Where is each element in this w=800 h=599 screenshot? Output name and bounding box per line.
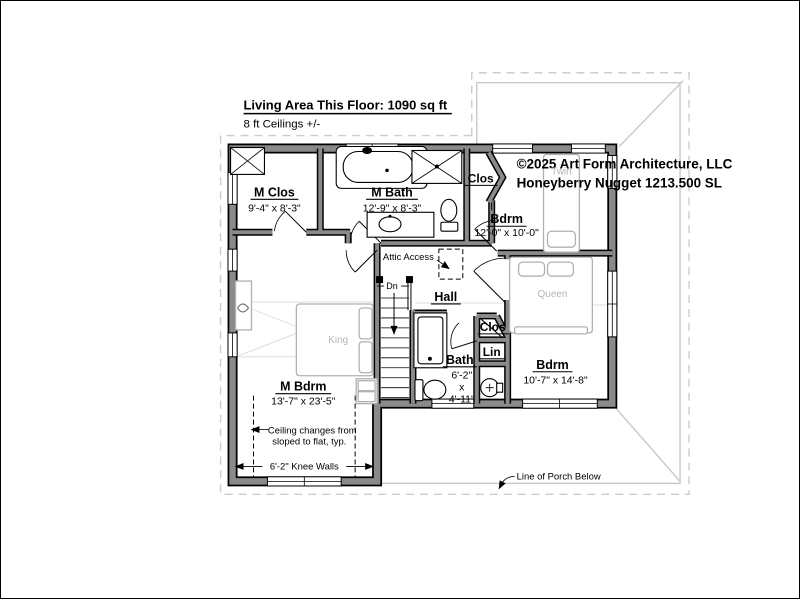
door-m-bdrm bbox=[346, 250, 377, 272]
toilet-mbath bbox=[441, 199, 458, 231]
closet-shelf bbox=[231, 148, 265, 175]
floor-plan-page: Living Area This Floor: 1090 sq ft 8 ft … bbox=[0, 0, 800, 599]
toilet-hall-bath bbox=[415, 380, 446, 401]
room-label-bath: Bath bbox=[446, 353, 474, 367]
door-queen-bdrm bbox=[474, 258, 505, 302]
door-hall-bath bbox=[451, 323, 477, 349]
room-label-m-bath: M Bath bbox=[371, 185, 412, 199]
room-dims-m-bath: 12'-9" x 8'-3" bbox=[363, 203, 422, 214]
window-twin-top-1 bbox=[493, 144, 533, 153]
room-label-m-clos: M Clos bbox=[254, 185, 295, 199]
room-dims-bdrm-queen: 10'-7" x 14'-8" bbox=[523, 376, 588, 387]
room-dim-bath-w: 6'-2" bbox=[451, 371, 472, 382]
window-queen-bottom bbox=[523, 399, 598, 408]
page-title: Living Area This Floor: 1090 sq ft bbox=[244, 98, 448, 113]
annotation-knee-walls: 6'-2" Knee Walls bbox=[270, 461, 339, 472]
annotation-attic-access: Attic Access bbox=[383, 252, 434, 263]
bench bbox=[356, 379, 377, 404]
room-label-hall: Hall bbox=[434, 290, 457, 304]
newel-post bbox=[376, 276, 383, 283]
room-label-bdrm-queen: Bdrm bbox=[536, 358, 568, 372]
room-dims-m-clos: 9'-4" x 8'-3" bbox=[248, 203, 301, 214]
furniture-label-queen: Queen bbox=[538, 289, 568, 300]
pedestal-sink bbox=[481, 379, 503, 397]
room-label-clos-small: Clos bbox=[480, 320, 506, 334]
room-label-clos-top: Clos bbox=[468, 171, 494, 185]
newel-post bbox=[406, 276, 413, 283]
annotation-dn: Dn bbox=[386, 281, 397, 291]
room-label-lin: Lin bbox=[483, 345, 501, 359]
room-label-m-bdrm: M Bdrm bbox=[280, 380, 326, 394]
copyright-line2: Honeyberry Nugget 1213.500 SL bbox=[517, 175, 722, 190]
page-subtitle: 8 ft Ceilings +/- bbox=[244, 119, 321, 131]
room-dims-m-bdrm: 13'-7" x 23'-5" bbox=[271, 397, 336, 408]
shower-mbath bbox=[412, 150, 462, 183]
floor-plan-drawing: Living Area This Floor: 1090 sq ft 8 ft … bbox=[1, 1, 799, 598]
furniture-label-twin: Twin bbox=[551, 166, 571, 177]
door-m-clos bbox=[274, 211, 306, 232]
room-dim-bath-h: 4'-11" bbox=[449, 395, 475, 406]
annotation-ceiling-line1: Ceiling changes from bbox=[268, 426, 357, 437]
annotation-porch: Line of Porch Below bbox=[517, 471, 601, 482]
room-label-bdrm-twin: Bdrm bbox=[490, 212, 522, 226]
window-mclos-left bbox=[228, 172, 237, 204]
room-dim-bath-x: x bbox=[459, 383, 465, 394]
furniture-label-king: King bbox=[328, 335, 348, 346]
chair bbox=[236, 281, 252, 330]
window-queen-right bbox=[608, 271, 617, 337]
staircase bbox=[376, 276, 413, 398]
vanity-sink bbox=[367, 212, 434, 237]
room-dims-bdrm-twin: 12'-0" x 10'-0" bbox=[474, 228, 539, 239]
window-twin-top-2 bbox=[571, 144, 605, 153]
annotation-ceiling-line2: sloped to flat, typ. bbox=[272, 437, 346, 448]
window-mbdrm-left-1 bbox=[228, 249, 237, 271]
copyright-line1: ©2025 Art Form Architecture, LLC bbox=[517, 156, 733, 171]
window-mbdrm-bottom bbox=[267, 477, 341, 486]
shower-hall-bath bbox=[414, 313, 447, 368]
window-mbdrm-left-2 bbox=[228, 333, 237, 357]
